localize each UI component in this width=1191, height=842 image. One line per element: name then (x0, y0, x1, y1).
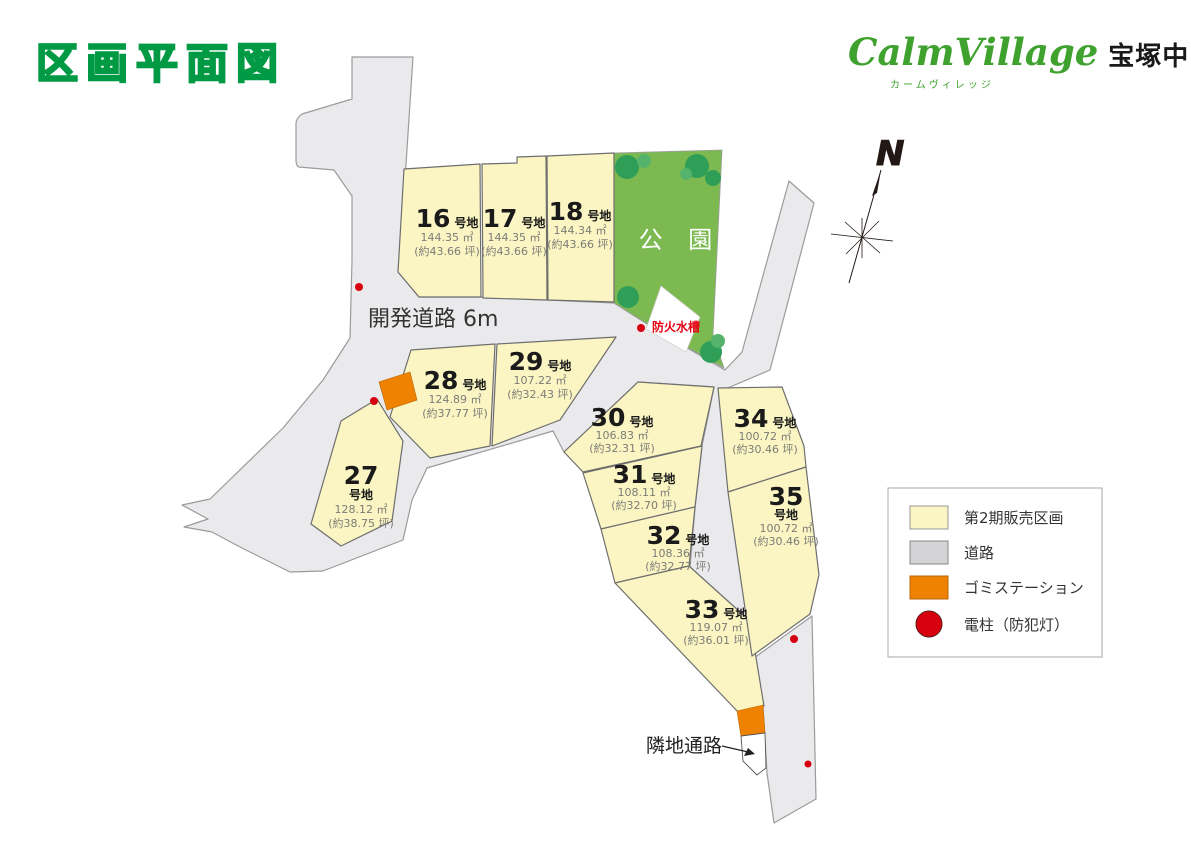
svg-text:144.35 ㎡: 144.35 ㎡ (421, 231, 474, 244)
north-compass: N (831, 134, 904, 283)
neighbor-passage-label: 隣地通路 (646, 735, 722, 757)
svg-text:(約43.66 坪): (約43.66 坪) (481, 244, 547, 258)
svg-text:(約36.01 坪): (約36.01 坪) (683, 633, 749, 647)
site-plan-map: 防火水槽 開発道路 6m 公 園 16号地 144.35 ㎡ (約43.66 坪… (0, 0, 1191, 842)
svg-text:(約32.31 坪): (約32.31 坪) (589, 441, 655, 455)
tree-icon (615, 155, 639, 179)
lot-plan-page: 区画平面図 CalmVillage 宝塚中山寺Ⅱ期 カームヴィレッジ (0, 0, 1191, 842)
svg-text:106.83 ㎡: 106.83 ㎡ (596, 429, 649, 442)
svg-text:119.07 ㎡: 119.07 ㎡ (690, 621, 743, 634)
svg-text:(約43.66 坪): (約43.66 坪) (414, 244, 480, 258)
tree-icon (617, 286, 639, 308)
legend-swatch-garbage (910, 576, 948, 599)
legend: 第2期販売区画 道路 ゴミステーション 電柱（防犯灯） (888, 488, 1102, 657)
svg-text:108.36 ㎡: 108.36 ㎡ (652, 547, 705, 560)
legend-pole-circle-icon (916, 611, 942, 637)
tree-icon (711, 334, 725, 348)
svg-text:(約32.77 坪): (約32.77 坪) (645, 559, 711, 573)
svg-text:(約38.75 坪): (約38.75 坪) (328, 516, 394, 530)
svg-text:(約30.46 坪): (約30.46 坪) (732, 442, 798, 456)
legend-label-road: 道路 (964, 544, 994, 562)
svg-text:号地: 号地 (774, 507, 798, 522)
svg-text:号地: 号地 (349, 487, 373, 502)
tree-icon (705, 170, 721, 186)
legend-swatch-lot (910, 506, 948, 529)
utility-pole-dot (790, 635, 798, 643)
svg-text:35: 35 (769, 482, 804, 511)
legend-label-lot: 第2期販売区画 (964, 509, 1064, 527)
svg-text:(約43.66 坪): (約43.66 坪) (547, 237, 613, 251)
legend-label-pole: 電柱（防犯灯） (964, 616, 1069, 634)
tree-icon (680, 168, 692, 180)
svg-text:144.34 ㎡: 144.34 ㎡ (554, 224, 607, 237)
legend-label-garbage: ゴミステーション (964, 579, 1084, 597)
svg-text:27: 27 (344, 461, 379, 490)
north-label: N (876, 134, 904, 174)
utility-pole-dot (637, 324, 645, 332)
fire-water-tank-label: 防火水槽 (652, 319, 700, 334)
tree-icon (637, 154, 651, 168)
utility-pole-dot (805, 761, 812, 768)
road-label: 開発道路 6m (368, 307, 498, 332)
svg-text:100.72 ㎡: 100.72 ㎡ (760, 522, 813, 535)
park-label: 公 園 (639, 226, 722, 254)
legend-swatch-road (910, 541, 948, 564)
svg-text:124.89 ㎡: 124.89 ㎡ (429, 393, 482, 406)
svg-text:108.11 ㎡: 108.11 ㎡ (618, 486, 671, 499)
svg-text:100.72 ㎡: 100.72 ㎡ (739, 430, 792, 443)
neighbor-passage-callout: 隣地通路 (646, 735, 755, 757)
utility-pole-dot (370, 397, 378, 405)
svg-text:(約32.70 坪): (約32.70 坪) (611, 498, 677, 512)
svg-text:144.35 ㎡: 144.35 ㎡ (488, 231, 541, 244)
svg-text:128.12 ㎡: 128.12 ㎡ (335, 503, 388, 516)
svg-text:(約32.43 坪): (約32.43 坪) (507, 387, 573, 401)
svg-text:(約30.46 坪): (約30.46 坪) (753, 534, 819, 548)
utility-pole-dot (355, 283, 363, 291)
svg-text:107.22 ㎡: 107.22 ㎡ (514, 374, 567, 387)
svg-text:(約37.77 坪): (約37.77 坪) (422, 406, 488, 420)
